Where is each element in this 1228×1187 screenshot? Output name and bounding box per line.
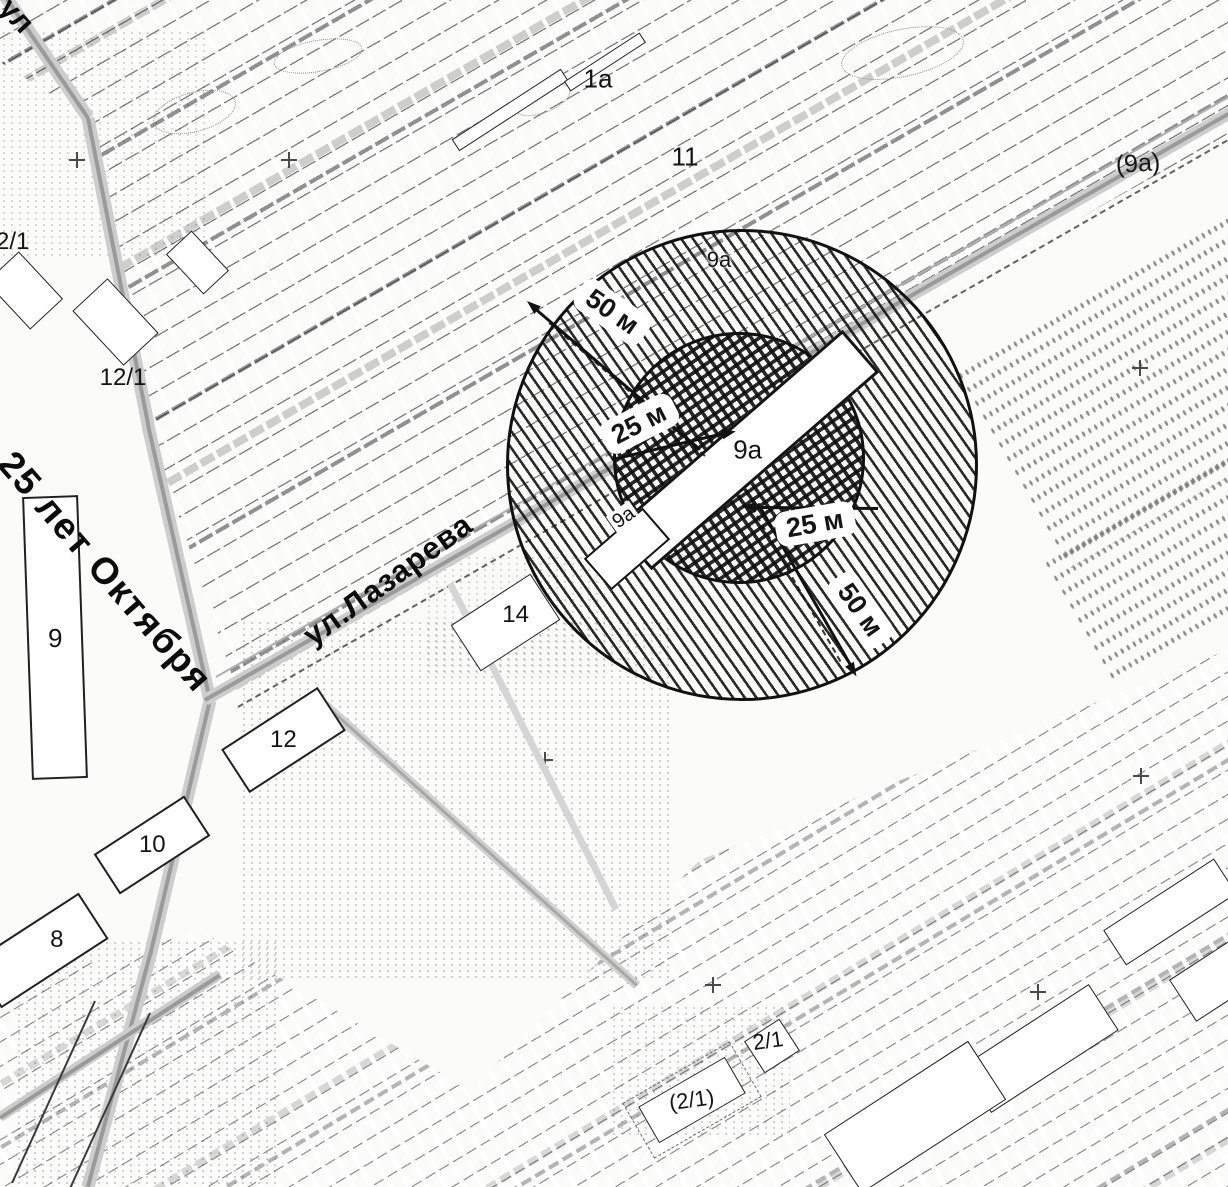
area-label-11: 11	[672, 142, 699, 173]
building-12-1-left	[0, 251, 63, 329]
label-2-1: 2/1	[751, 1026, 785, 1056]
zone-building-9a-label: 9а	[733, 435, 762, 466]
grid-cross	[69, 152, 85, 168]
grid-cross	[281, 152, 297, 168]
grid-cross	[1132, 360, 1148, 376]
grid-cross	[705, 977, 721, 993]
building-9-label: 9	[48, 625, 62, 651]
label-12-1-mid: 12/1	[100, 364, 147, 392]
label-12-1-left: 12/1	[0, 228, 29, 256]
building-10: 10	[94, 795, 211, 894]
area-label-1a: 1а	[584, 64, 613, 95]
grid-cross	[1133, 768, 1149, 784]
zone-area-top-label: 9а	[707, 247, 731, 273]
building-8-label: 8	[50, 928, 63, 952]
topographic-map: 9 12 10 8 14 (2/1) 11 1а (9а) 12/1 12/1 …	[0, 0, 1228, 1187]
building-12-label: 12	[270, 728, 297, 752]
building-14-label: 14	[502, 603, 529, 627]
area-label-9a-paren: (9а)	[1115, 148, 1161, 180]
building-10-label: 10	[139, 833, 166, 857]
building-2-1-paren-label: (2/1)	[668, 1086, 716, 1114]
grid-cross	[1030, 984, 1046, 1000]
